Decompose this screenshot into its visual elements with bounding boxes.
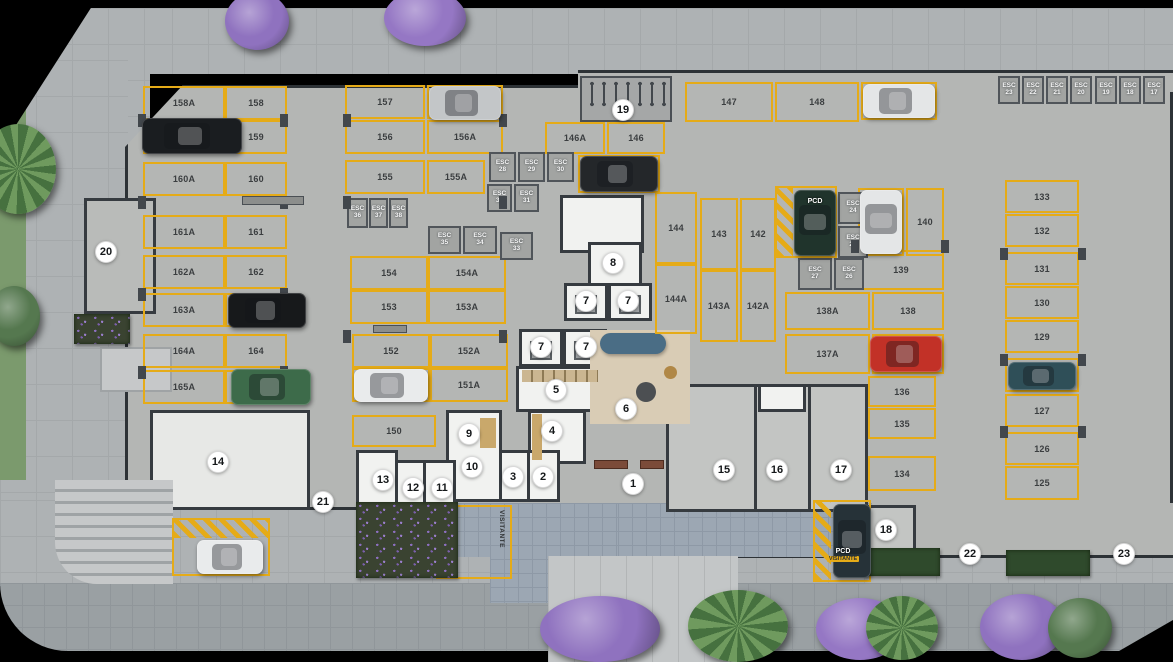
car xyxy=(833,504,871,578)
storage-locker: ESC21 xyxy=(1046,76,1068,104)
storage-locker: ESC28 xyxy=(489,152,516,182)
storage-locker-number: 37 xyxy=(375,213,382,220)
parking-spot: 156 xyxy=(345,120,425,154)
parking-spot: 161 xyxy=(225,215,287,249)
storage-locker-number: 29 xyxy=(528,167,535,174)
parking-spot-label: 158A xyxy=(173,98,195,108)
parking-spot-label: 152A xyxy=(458,346,480,356)
parking-spot-label: 163A xyxy=(173,305,195,315)
car-windshield xyxy=(164,123,210,150)
bike-icon xyxy=(636,80,644,108)
parking-spot: 154 xyxy=(350,256,428,290)
parking-spot: 163A xyxy=(143,293,225,327)
parking-spot: 153A xyxy=(428,290,506,324)
storage-locker: ESC31 xyxy=(514,184,539,212)
key-marker: 7 xyxy=(530,336,552,358)
pillar xyxy=(499,330,507,343)
parking-spot: 143A xyxy=(700,270,738,342)
car-windshield xyxy=(886,341,919,368)
key-marker: 7 xyxy=(575,290,597,312)
parking-spot-label: 140 xyxy=(917,217,933,227)
beam xyxy=(373,325,407,333)
parking-spot: 144 xyxy=(655,192,697,264)
parking-spot: 132 xyxy=(1005,214,1079,247)
parking-spot: 164 xyxy=(225,334,287,368)
key-marker: 9 xyxy=(458,423,480,445)
pillar xyxy=(138,288,146,301)
parking-spot: 133 xyxy=(1005,180,1079,213)
parking-spot-label: 161A xyxy=(173,227,195,237)
hedge xyxy=(1006,550,1090,576)
parking-spot-label: 150 xyxy=(386,426,402,436)
parking-spot: 134 xyxy=(868,456,936,491)
parking-spot-label: 131 xyxy=(1034,264,1050,274)
parking-spot: 130 xyxy=(1005,286,1079,319)
parking-spot-label: 164A xyxy=(173,346,195,356)
parking-spot: 125 xyxy=(1005,466,1079,500)
storage-locker: ESC29 xyxy=(518,152,545,182)
parking-spot: 136 xyxy=(868,376,936,407)
parking-spot-label: 160 xyxy=(248,174,264,184)
storage-locker: ESC26 xyxy=(834,258,864,290)
car xyxy=(231,369,311,405)
parking-spot-label: 127 xyxy=(1034,406,1050,416)
pillar xyxy=(1000,426,1008,438)
storage-locker: ESC22 xyxy=(1022,76,1044,104)
floorplan-canvas: PCD VISITANTE PCD VISITANTE 158A158159A1… xyxy=(0,0,1173,662)
storage-locker-number: 27 xyxy=(811,274,818,281)
key-marker: 16 xyxy=(766,459,788,481)
hedge xyxy=(864,548,940,576)
key-marker: 11 xyxy=(431,477,453,499)
parking-spot: 155 xyxy=(345,160,425,194)
bench xyxy=(594,460,628,469)
car xyxy=(197,540,263,574)
parking-spot-label: 156 xyxy=(377,132,393,142)
parking-spot-label: 164 xyxy=(248,346,264,356)
parking-spot: 146A xyxy=(545,122,605,154)
tree xyxy=(688,590,788,662)
parking-spot-label: 152 xyxy=(383,346,399,356)
car xyxy=(429,86,501,120)
parking-spot-label: 165A xyxy=(173,382,195,392)
parking-spot-label: 142A xyxy=(747,301,769,311)
parking-spot: 158 xyxy=(225,86,287,120)
visitor-hatch-band xyxy=(174,520,268,538)
parking-spot: 150 xyxy=(352,415,436,447)
car-windshield xyxy=(245,298,281,324)
key-marker: 12 xyxy=(402,477,424,499)
key-marker: 17 xyxy=(830,459,852,481)
tree xyxy=(866,596,938,660)
wall-divider-15-16 xyxy=(754,387,757,509)
car xyxy=(228,293,306,328)
parking-spot-label: 157 xyxy=(377,97,393,107)
storage-locker: ESC23 xyxy=(998,76,1020,104)
parking-spot: 158A xyxy=(143,86,225,120)
storage-locker: ESC34 xyxy=(463,226,497,254)
parking-spot-label: 144A xyxy=(665,294,687,304)
pillar xyxy=(280,114,288,127)
parking-spot: 155A xyxy=(427,160,485,194)
parking-spot-label: 160A xyxy=(173,174,195,184)
parking-spot: 129 xyxy=(1005,320,1079,353)
parking-spot-label: 125 xyxy=(1034,478,1050,488)
parking-spot: 142A xyxy=(740,270,776,342)
pcd-hatch-strip xyxy=(777,188,793,256)
parking-spot: 156A xyxy=(427,120,503,154)
pillar xyxy=(138,366,146,379)
key-marker: 5 xyxy=(545,379,567,401)
parking-spot-label: 154A xyxy=(456,268,478,278)
key-marker: 19 xyxy=(612,99,634,121)
storage-locker: ESC33 xyxy=(500,232,533,260)
bike-icon xyxy=(600,80,608,108)
parking-spot: 160A xyxy=(143,162,225,196)
parking-spot: 139 xyxy=(858,250,944,290)
car xyxy=(1008,362,1076,390)
parking-spot-label: 135 xyxy=(894,419,910,429)
parking-spot: 143 xyxy=(700,198,738,270)
storage-locker: ESC20 xyxy=(1070,76,1092,104)
key-marker: 23 xyxy=(1113,543,1135,565)
pillar xyxy=(851,240,859,253)
storage-locker-number: 30 xyxy=(557,167,564,174)
key-marker: 18 xyxy=(875,519,897,541)
parking-spot-label: 162A xyxy=(173,267,195,277)
storage-locker-number: 28 xyxy=(499,167,506,174)
parking-spot-label: 153 xyxy=(381,302,397,312)
key-marker: 21 xyxy=(312,491,334,513)
hedge xyxy=(74,314,130,344)
parking-spot-label: 162 xyxy=(248,267,264,277)
parking-spot: 154A xyxy=(428,256,506,290)
parking-spot-label: 138A xyxy=(816,306,838,316)
lounge-table xyxy=(636,382,656,402)
storage-locker-number: 24 xyxy=(849,208,856,215)
parking-spot-label: 126 xyxy=(1034,444,1050,454)
sidewalk-top xyxy=(28,8,1173,74)
parking-spot-label: 148 xyxy=(809,97,825,107)
storage-locker-number: 26 xyxy=(845,274,852,281)
parking-spot: 126 xyxy=(1005,432,1079,465)
storage-locker-number: 36 xyxy=(354,213,361,220)
car-windshield xyxy=(1023,366,1054,387)
car-windshield xyxy=(865,204,896,233)
parking-spot-label: 130 xyxy=(1034,298,1050,308)
storage-locker-number: 38 xyxy=(395,213,402,220)
bike-icon xyxy=(588,80,596,108)
parking-spot-label: 136 xyxy=(894,387,910,397)
car-windshield xyxy=(597,161,633,188)
parking-spot: 152 xyxy=(352,334,430,368)
pcd-visitor-label-line2: VISITANTE xyxy=(827,556,859,562)
car xyxy=(354,369,428,402)
storage-locker: ESC37 xyxy=(369,198,388,228)
car-windshield xyxy=(879,88,912,113)
parking-spot-label: 143 xyxy=(711,229,727,239)
pcd-visitor-hatch-strip xyxy=(815,502,831,580)
car xyxy=(870,336,942,372)
key-marker: 3 xyxy=(502,466,524,488)
pcd-visitor-label-line1: PCD xyxy=(836,548,851,555)
storage-locker-number: 34 xyxy=(476,240,483,247)
parking-spot-label: 133 xyxy=(1034,192,1050,202)
parking-spot-label: 151A xyxy=(458,380,480,390)
parking-spot-label: 147 xyxy=(721,97,737,107)
visitor-spot-label: VISITANTE xyxy=(498,510,505,576)
car-windshield xyxy=(445,90,478,115)
parking-spot: 157 xyxy=(345,85,425,119)
parking-spot: 161A xyxy=(143,215,225,249)
storage-locker: ESC30 xyxy=(547,152,574,182)
parking-spot-label: 144 xyxy=(668,223,684,233)
pillar xyxy=(343,196,351,209)
storage-locker-number: 19 xyxy=(1102,90,1109,97)
parking-spot-label: 159 xyxy=(248,132,264,142)
parking-spot-label: 143A xyxy=(708,301,730,311)
car-windshield xyxy=(799,205,830,235)
beam xyxy=(242,196,304,205)
tree xyxy=(1048,598,1112,658)
key-marker: 22 xyxy=(959,543,981,565)
pillar xyxy=(1000,354,1008,366)
parking-spot: 144A xyxy=(655,264,697,334)
hedge xyxy=(356,502,458,578)
parking-spot-label: 146A xyxy=(564,133,586,143)
car xyxy=(580,156,658,192)
parking-spot-label: 155 xyxy=(377,172,393,182)
car xyxy=(142,118,242,154)
parking-spot: 164A xyxy=(143,334,225,368)
parking-spot: 153 xyxy=(350,290,428,324)
storage-locker: ESC38 xyxy=(389,198,408,228)
parking-spot-label: 142 xyxy=(750,229,766,239)
storage-locker-number: 35 xyxy=(441,240,448,247)
storage-locker-number: 33 xyxy=(513,246,520,253)
room-14-storage xyxy=(150,410,310,510)
storage-locker: ESC17 xyxy=(1143,76,1165,104)
storage-locker-number: 20 xyxy=(1077,90,1084,97)
key-marker: 15 xyxy=(713,459,735,481)
storage-locker: ESC27 xyxy=(798,258,832,290)
lounge-stool xyxy=(664,366,677,379)
wall-divider-2-3 xyxy=(527,452,530,500)
parking-spot-label: 154 xyxy=(381,268,397,278)
parking-spot: 162A xyxy=(143,255,225,289)
parking-spot: 138 xyxy=(872,292,944,330)
storage-locker-number: 23 xyxy=(1005,90,1012,97)
parking-spot-label: 138 xyxy=(900,306,916,316)
parking-spot-label: 146 xyxy=(628,133,644,143)
pillar xyxy=(343,330,351,343)
pantry-counter xyxy=(532,414,542,460)
pcd-visitor-label: PCD VISITANTE xyxy=(818,548,868,562)
parking-spot: 142 xyxy=(740,198,776,270)
pillar xyxy=(1078,248,1086,260)
wall-divider-16-17 xyxy=(808,387,811,509)
key-marker: 1 xyxy=(622,473,644,495)
storage-locker-number: 31 xyxy=(523,198,530,205)
lounge-sofa xyxy=(600,333,666,354)
parking-spot-label: 132 xyxy=(1034,226,1050,236)
parking-spot-label: 137A xyxy=(816,349,838,359)
parking-spot-label: 153A xyxy=(456,302,478,312)
parking-spot-label: 158 xyxy=(248,98,264,108)
admin-desk xyxy=(480,418,496,448)
car xyxy=(860,190,902,254)
parking-spot-label: 139 xyxy=(893,265,909,275)
pillar xyxy=(499,196,507,209)
parking-spot-label: 155A xyxy=(445,172,467,182)
storage-locker: ESC19 xyxy=(1095,76,1117,104)
key-marker: 7 xyxy=(617,290,639,312)
parking-spot: 140 xyxy=(906,188,944,256)
exterior-stairs xyxy=(55,480,173,584)
pillar xyxy=(138,196,146,209)
car xyxy=(863,84,935,118)
parking-spot: 162 xyxy=(225,255,287,289)
storage-locker: ESC18 xyxy=(1119,76,1141,104)
bench xyxy=(640,460,664,469)
car-windshield xyxy=(249,374,286,401)
parking-spot: 160 xyxy=(225,162,287,196)
parking-spot: 148 xyxy=(775,82,859,122)
pcd-spot-label: PCD xyxy=(795,198,835,205)
parking-spot: 135 xyxy=(868,408,936,439)
parking-spot: 138A xyxy=(785,292,870,330)
pillar xyxy=(941,240,949,253)
key-marker: 4 xyxy=(541,420,563,442)
pillar xyxy=(343,114,351,127)
pillar xyxy=(1078,354,1086,366)
key-marker: 6 xyxy=(615,398,637,420)
key-marker: 2 xyxy=(532,466,554,488)
key-marker: 8 xyxy=(602,252,624,274)
room-16-notch xyxy=(758,384,806,412)
parking-spot-label: 161 xyxy=(248,227,264,237)
key-marker: 7 xyxy=(575,336,597,358)
storage-locker-number: 17 xyxy=(1150,90,1157,97)
car-windshield xyxy=(212,544,242,569)
bike-icon xyxy=(660,80,668,108)
key-marker: 20 xyxy=(95,241,117,263)
storage-locker-number: 22 xyxy=(1029,90,1036,97)
parking-spot: 147 xyxy=(685,82,773,122)
parking-spot: 165A xyxy=(143,370,225,404)
storage-locker-number: 21 xyxy=(1053,90,1060,97)
parking-spot-label: 129 xyxy=(1034,332,1050,342)
car-windshield xyxy=(370,373,404,397)
storage-locker-number: 18 xyxy=(1126,90,1133,97)
bike-icon xyxy=(648,80,656,108)
parking-spot: 127 xyxy=(1005,394,1079,427)
parking-spot: 137A xyxy=(785,334,870,374)
pillar xyxy=(1078,426,1086,438)
key-marker: 14 xyxy=(207,451,229,473)
storage-locker: ESC35 xyxy=(428,226,461,254)
key-marker: 10 xyxy=(461,456,483,478)
key-marker: 13 xyxy=(372,469,394,491)
parking-spot-label: 156A xyxy=(454,132,476,142)
pillar xyxy=(1000,248,1008,260)
parking-spot: 151A xyxy=(430,368,508,402)
tree xyxy=(540,596,660,662)
parking-spot: 146 xyxy=(607,122,665,154)
parking-spot-label: 134 xyxy=(894,469,910,479)
parking-spot: 131 xyxy=(1005,252,1079,285)
parking-spot: 152A xyxy=(430,334,508,368)
